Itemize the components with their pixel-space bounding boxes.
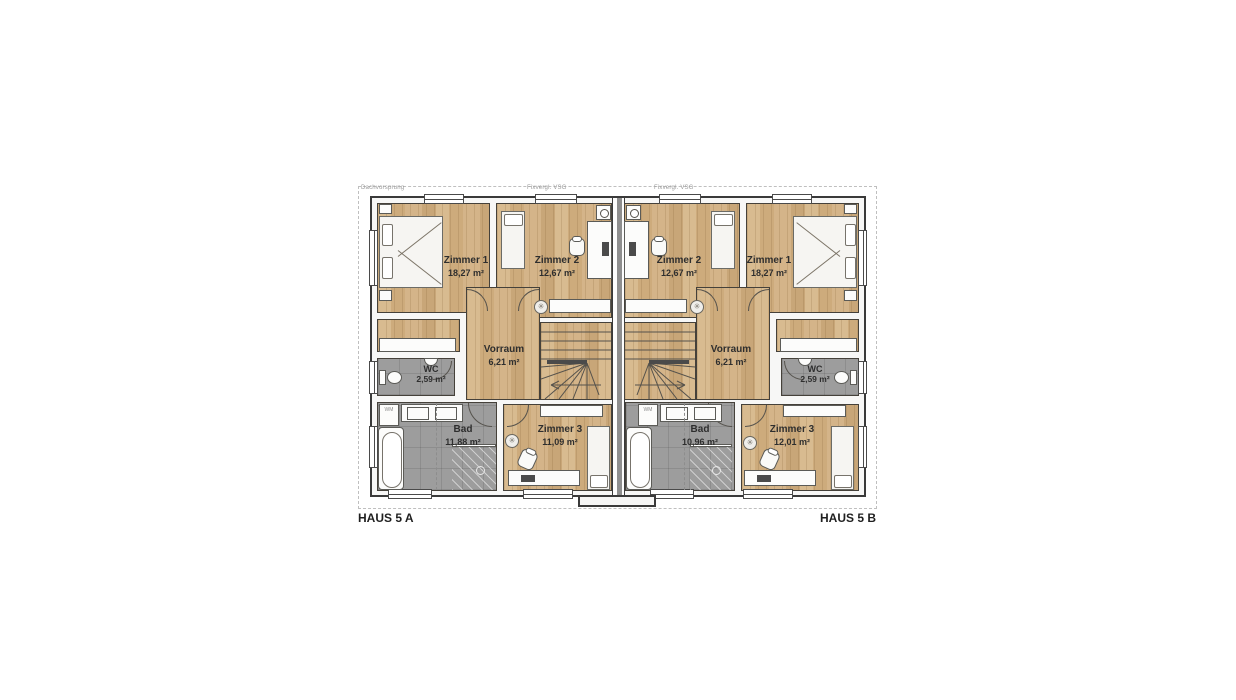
shower-area-a (452, 446, 496, 490)
annotation-fixverglazing-left: Fixvergl. VSG (527, 185, 567, 191)
nightstand (379, 290, 392, 301)
window-zimmer1-b-right (858, 230, 867, 286)
shelf-zimmer3-b (783, 405, 846, 417)
vanity-counter-a (401, 404, 463, 422)
sideboard-zimmer2-a (549, 299, 611, 313)
vanity-counter-b (660, 404, 722, 422)
house-b-title: HAUS 5 B (820, 511, 876, 525)
toilet-b (834, 371, 849, 384)
desk-chair-zimmer2-b (651, 238, 667, 256)
room-label-bad-b: Bad 10,96 m² (682, 424, 718, 448)
room-label-vorraum-a: Vorraum 6,21 m² (484, 344, 524, 368)
room-label-wc-a: WC 2,59 m² (416, 364, 445, 384)
shower-area-b (690, 446, 732, 490)
window-zimmer3-b-bottom (743, 489, 793, 499)
single-bed-zimmer3-b (831, 426, 854, 490)
window-zimmer3-b-right (858, 426, 867, 468)
desk-zimmer3-b (744, 470, 816, 486)
wardrobe-a (379, 338, 456, 352)
window-wc-a-left (369, 361, 378, 394)
bathtub-a (378, 427, 404, 490)
single-bed-zimmer3-a (587, 426, 610, 490)
room-label-zimmer3-b: Zimmer 3 12,01 m² (770, 424, 814, 448)
stairwell-b (624, 322, 696, 400)
floor-drain-b (712, 466, 721, 475)
room-label-zimmer1-a: Zimmer 1 18,27 m² (444, 255, 488, 279)
radiator-icon (534, 300, 548, 314)
room-label-zimmer2-a: Zimmer 2 12,67 m² (535, 255, 579, 279)
double-bed-b (793, 216, 857, 288)
annotation-fixverglazing-right: Fixvergl. VSG (654, 185, 694, 191)
floor-drain-a (476, 466, 485, 475)
staircase-a (541, 323, 611, 399)
double-bed-a (379, 216, 443, 288)
wardrobe-b (780, 338, 857, 352)
nightstand (844, 290, 857, 301)
window-bad-b-bottom (650, 489, 694, 499)
chimney-flue-a (596, 205, 611, 220)
room-label-vorraum-b: Vorraum 6,21 m² (711, 344, 751, 368)
desk-zimmer2-b (624, 221, 649, 279)
sideboard-zimmer2-b (625, 299, 687, 313)
single-bed-zimmer2-a (501, 211, 525, 269)
washing-machine-a: WM (379, 404, 399, 426)
chimney-flue-b (626, 205, 641, 220)
washing-machine-b: WM (638, 404, 658, 426)
entrance-bay (578, 495, 656, 507)
desk-zimmer2-a (587, 221, 612, 279)
window-zimmer1-a-left (369, 230, 378, 286)
radiator-icon (690, 300, 704, 314)
window-bad-a-bottom (388, 489, 432, 499)
window-zimmer2-a-top (535, 194, 577, 204)
room-label-wc-b: WC 2,59 m² (800, 364, 829, 384)
room-label-zimmer3-a: Zimmer 3 11,09 m² (538, 424, 582, 448)
desk-zimmer3-a (508, 470, 580, 486)
nightstand (379, 204, 392, 214)
bathtub-b (626, 427, 652, 490)
toilet-cistern-b (850, 370, 857, 385)
radiator-icon (505, 434, 519, 448)
radiator-icon (743, 436, 757, 450)
house-a-title: HAUS 5 A (358, 511, 414, 525)
ceiling-slope-line-a (436, 403, 437, 490)
window-zimmer2-b-top (659, 194, 701, 204)
window-bad-a-left (369, 426, 378, 468)
annotation-dachvorsprung: Dachvorsprung (361, 185, 404, 191)
room-label-bad-a: Bad 11,88 m² (445, 424, 481, 448)
staircase-b (625, 323, 695, 399)
window-wc-b-right (858, 361, 867, 394)
single-bed-zimmer2-b (711, 211, 735, 269)
window-zimmer1-b-top (772, 194, 812, 204)
desk-chair-zimmer2-a (569, 238, 585, 256)
toilet-a (387, 371, 402, 384)
window-zimmer1-a-top (424, 194, 464, 204)
floorplan-canvas: Dachvorsprung Fixvergl. VSG Fixvergl. VS… (0, 0, 1236, 700)
nightstand (844, 204, 857, 214)
shelf-zimmer3-a (540, 405, 603, 417)
window-zimmer3-a-bottom (523, 489, 573, 499)
room-label-zimmer2-b: Zimmer 2 12,67 m² (657, 255, 701, 279)
stairwell-a (540, 322, 612, 400)
toilet-cistern-a (379, 370, 386, 385)
room-label-zimmer1-b: Zimmer 1 18,27 m² (747, 255, 791, 279)
